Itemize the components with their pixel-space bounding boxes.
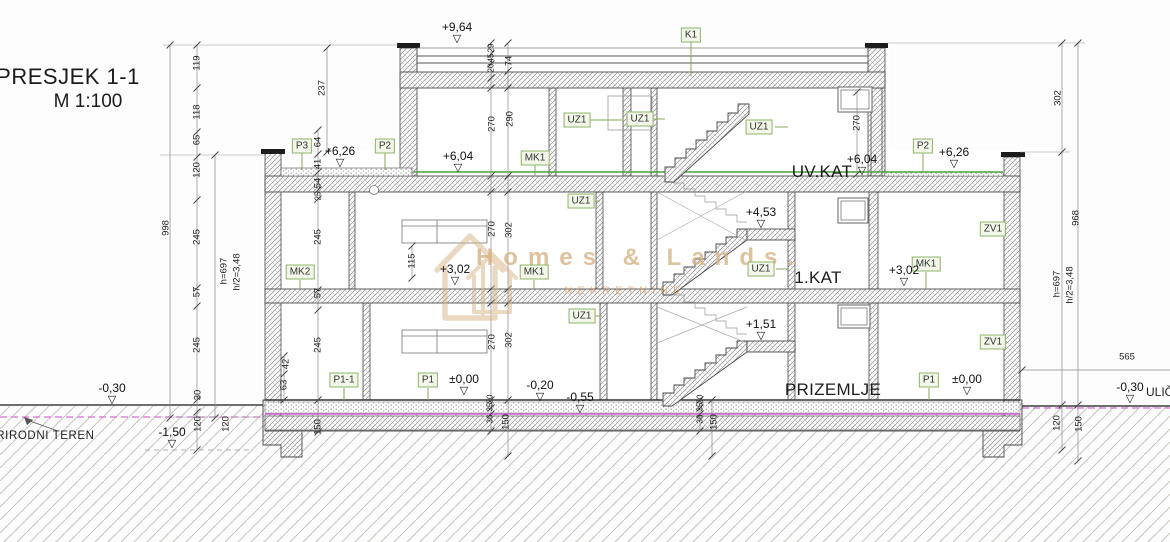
terrain-label: PRIRODNI TEREN	[0, 430, 95, 442]
level-marker: +3,02▽	[889, 264, 919, 287]
level-marker: -1,50▽	[158, 426, 185, 449]
dimension-label: 270	[487, 334, 498, 350]
component-tag: MK1	[520, 265, 549, 280]
dimension-label: 35	[486, 403, 495, 412]
dimension-label: h=697	[1052, 271, 1063, 298]
component-tag: UZ1	[748, 262, 775, 277]
dimension-label: 45	[487, 54, 496, 63]
dimension-label: 118	[192, 104, 203, 119]
level-triangle-icon: ▽	[1126, 394, 1134, 404]
dimension-label: 120	[193, 416, 204, 432]
level-triangle-icon: ▽	[950, 159, 958, 169]
dimension-label: 119	[192, 55, 203, 70]
dimension-label: 245	[192, 337, 203, 353]
level-marker: +6,26▽	[325, 145, 355, 168]
level-marker: -0,30▽	[98, 382, 125, 405]
dimension-label: 64	[313, 137, 324, 148]
dimension-label: 35	[696, 403, 705, 412]
component-tag: P2	[913, 139, 933, 154]
component-tag: P2	[375, 139, 395, 154]
component-tag: UZ1	[569, 309, 596, 324]
level-triangle-icon: ▽	[963, 386, 971, 396]
drawing-scale: M 1:100	[54, 91, 123, 113]
level-triangle-icon: ▽	[108, 395, 116, 405]
dimension-label: 20	[487, 64, 496, 73]
level-triangle-icon: ▽	[757, 331, 765, 341]
level-triangle-icon: ▽	[336, 158, 344, 168]
dimension-label: 120	[1052, 415, 1063, 431]
level-marker: -0,55▽	[566, 391, 593, 414]
annotation-layer: PRESJEK 1-1 M 1:100 PRIRODNI TEREN ULIČN…	[0, 0, 1170, 542]
level-triangle-icon: ▽	[453, 34, 461, 44]
dimension-label: 25	[314, 192, 323, 201]
component-tag: UZ1	[627, 112, 654, 127]
component-tag: UZ1	[746, 120, 773, 135]
component-tag: MK1	[521, 151, 550, 166]
dimension-label: 30	[193, 390, 204, 401]
level-triangle-icon: ▽	[168, 439, 176, 449]
level-marker: +1,51▽	[746, 318, 776, 341]
dimension-label: 57	[313, 288, 324, 299]
level-marker: +4,53▽	[746, 206, 776, 229]
floor-label: UV.KAT	[792, 162, 852, 182]
dimension-label: 57	[192, 287, 203, 298]
level-triangle-icon: ▽	[460, 386, 468, 396]
component-tag: ZV1	[980, 335, 1006, 350]
dimension-label: 63	[279, 380, 290, 391]
dimension-label: 115	[407, 253, 418, 268]
dimension-label: 245	[313, 337, 324, 353]
dimension-label: 302	[504, 222, 515, 238]
level-triangle-icon: ▽	[536, 392, 544, 402]
level-marker: ±0,00▽	[952, 373, 982, 396]
level-marker: ±0,00▽	[449, 373, 479, 396]
floor-label: PRIZEMLJE	[785, 380, 881, 400]
component-tag: UZ1	[568, 194, 595, 209]
dimension-label: 42	[281, 359, 292, 370]
component-tag: P3	[292, 139, 312, 154]
dimension-label: 120	[192, 162, 203, 178]
level-marker: -0,20▽	[526, 379, 553, 402]
level-triangle-icon: ▽	[900, 277, 908, 287]
dimension-label: h/2=3,48	[232, 253, 243, 290]
component-tag: UZ1	[564, 113, 591, 128]
dimension-label: 120	[221, 416, 232, 432]
dimension-label: 302	[1053, 90, 1064, 106]
dimension-label: 565	[1119, 352, 1135, 363]
level-marker: -0,30▽	[1116, 381, 1143, 404]
dimension-label: 270	[487, 116, 498, 132]
dimension-label: 36	[696, 415, 705, 424]
component-tag: MK2	[286, 265, 315, 280]
dimension-label: 270	[852, 115, 863, 131]
dimension-label: 41	[313, 159, 324, 170]
level-triangle-icon: ▽	[757, 219, 765, 229]
dimension-label: h/2=3,48	[1065, 266, 1076, 303]
component-tag: P1	[919, 373, 939, 388]
dimension-label: 54	[313, 178, 324, 189]
level-triangle-icon: ▽	[451, 276, 459, 286]
dimension-label: 290	[505, 111, 516, 127]
dimension-label: h=697	[219, 258, 230, 285]
dimension-label: 245	[313, 229, 324, 245]
section-drawing-page: Homes & Lands. NEKRETNINE PRESJEK 1-1 M …	[0, 0, 1170, 542]
street-label: ULIČNI	[1146, 385, 1170, 399]
dimension-label: 150	[501, 414, 512, 430]
component-tag: ZV1	[980, 222, 1006, 237]
level-triangle-icon: ▽	[576, 404, 584, 414]
dimension-label: 237	[317, 80, 328, 96]
component-tag: P1-1	[329, 373, 358, 388]
dimension-label: 150	[709, 414, 720, 430]
level-triangle-icon: ▽	[454, 163, 462, 173]
dimension-label: 245	[192, 229, 203, 245]
drawing-title: PRESJEK 1-1	[0, 64, 140, 90]
dimension-label: 36	[486, 415, 495, 424]
dimension-label: 150	[1074, 416, 1085, 432]
dimension-label: 968	[1071, 210, 1082, 226]
dimension-label: 29	[487, 44, 496, 53]
level-marker: +6,26▽	[939, 146, 969, 169]
level-marker: +9,64▽	[442, 21, 472, 44]
level-marker: +6,04▽	[847, 153, 877, 176]
dimension-label: 998	[161, 220, 172, 236]
dimension-label: 65	[192, 135, 203, 146]
dimension-label: 150	[313, 419, 324, 435]
dimension-label: 302	[504, 332, 515, 348]
level-marker: +6,04▽	[443, 150, 473, 173]
floor-label: 1.KAT	[794, 268, 841, 288]
level-marker: +3,02▽	[440, 263, 470, 286]
dimension-label: 74	[504, 56, 515, 67]
dimension-label: 270	[487, 221, 498, 237]
component-tag: P1	[418, 373, 438, 388]
level-triangle-icon: ▽	[858, 166, 866, 176]
component-tag: K1	[681, 28, 701, 43]
